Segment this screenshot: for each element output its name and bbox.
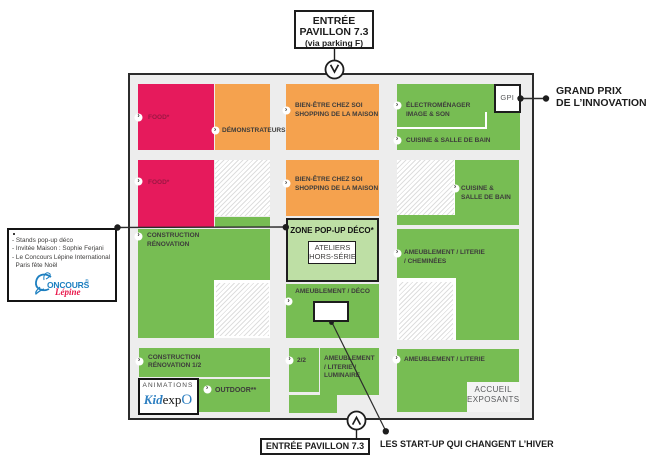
svg-text:®: ® — [85, 278, 89, 285]
svg-text:Lépine: Lépine — [54, 287, 81, 297]
